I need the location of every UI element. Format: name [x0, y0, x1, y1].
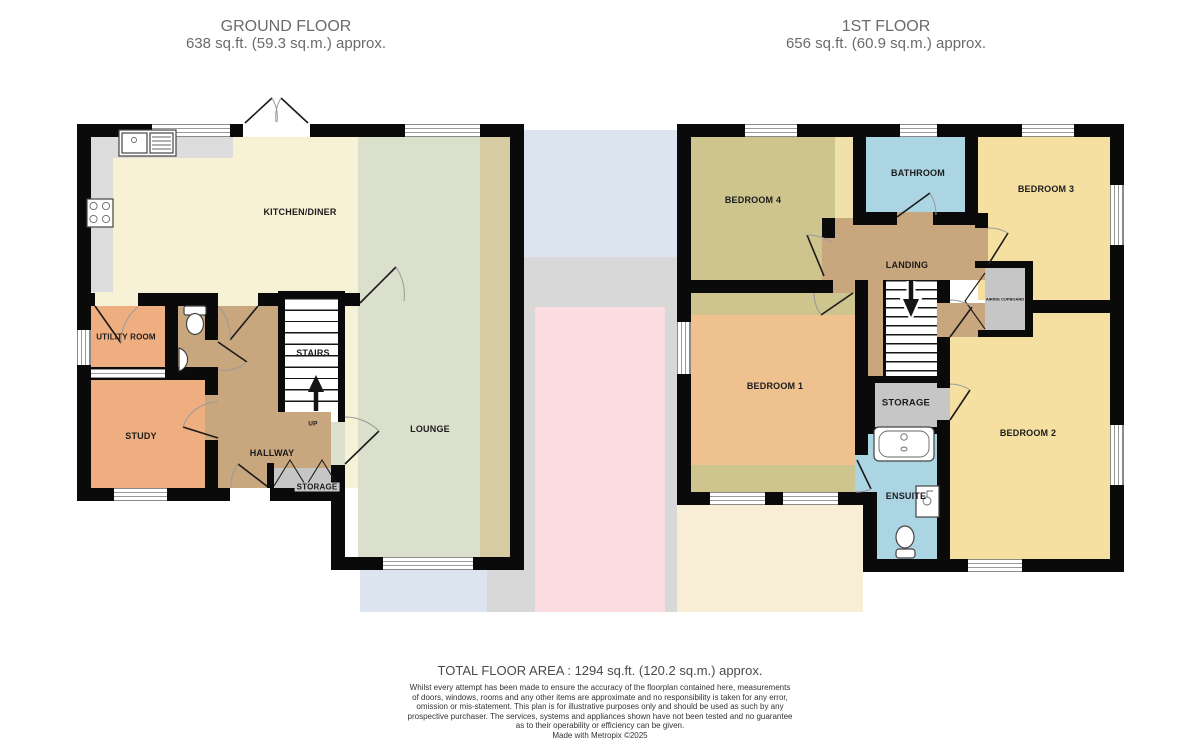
up-label: UP [308, 421, 317, 428]
wc-floor [178, 306, 205, 367]
wall [853, 212, 897, 225]
wall [205, 306, 218, 340]
window [745, 124, 797, 137]
wall [138, 293, 218, 306]
airing-cupboard-label: AIRING CUPBOARD [986, 297, 1024, 302]
first-floor-title: 1ST FLOOR [736, 18, 1036, 36]
kitchen-counter [91, 137, 233, 158]
bedroom3-label: BEDROOM 3 [1018, 184, 1074, 194]
wall [937, 280, 950, 303]
wall [473, 557, 524, 570]
footer: TOTAL FLOOR AREA : 1294 sq.ft. (120.2 sq… [0, 663, 1200, 741]
wash-cream [677, 505, 863, 612]
wall [822, 218, 835, 238]
wall [331, 557, 383, 570]
window [114, 488, 167, 501]
disclaimer-line: Whilst every attempt has been made to en… [0, 683, 1200, 693]
window [1110, 185, 1124, 245]
credit-line: Made with Metropix ©2025 [0, 731, 1200, 741]
wash-gray [487, 570, 535, 612]
bedroom4-label: BEDROOM 4 [725, 195, 781, 205]
wall [883, 280, 886, 380]
wall [278, 291, 345, 298]
wall [267, 463, 274, 488]
wash-blue [360, 570, 487, 612]
first-floor-area: 656 sq.ft. (60.9 sq.m.) approx. [736, 36, 1036, 52]
wall [1022, 559, 1124, 572]
wall [230, 124, 243, 137]
window [152, 124, 230, 137]
disclaimer-line: prospective purchaser. The services, sys… [0, 712, 1200, 722]
window [900, 124, 937, 137]
wall [77, 488, 114, 501]
kitchen-diner-label: KITCHEN/DINER [263, 207, 336, 217]
doorway [218, 293, 258, 306]
doorway [855, 455, 868, 492]
wash-gray [524, 307, 535, 612]
doorway [937, 388, 950, 420]
wall [1025, 261, 1033, 337]
landing-label: LANDING [886, 260, 928, 270]
wall [1110, 245, 1124, 425]
ground-floor-header: GROUND FLOOR 638 sq.ft. (59.3 sq.m.) app… [136, 18, 436, 52]
kitchen-diner-floor [91, 137, 358, 306]
doorway [95, 293, 138, 306]
bathroom-label: BATHROOM [891, 168, 945, 178]
doorway [205, 340, 218, 367]
floorplan-canvas: GROUND FLOOR 638 sq.ft. (59.3 sq.m.) app… [0, 0, 1200, 744]
doorway [331, 422, 345, 465]
wall [677, 374, 691, 505]
wash-gray [524, 257, 677, 307]
window [968, 559, 1022, 572]
stairs-down [885, 280, 937, 380]
wall [345, 293, 360, 306]
disclaimer-line: as to their operability or efficiency ca… [0, 721, 1200, 731]
wall [167, 488, 230, 501]
wall [677, 492, 710, 505]
internal-window [91, 369, 165, 378]
doorway [822, 238, 835, 280]
total-floor-area: TOTAL FLOOR AREA : 1294 sq.ft. (120.2 sq… [0, 663, 1200, 678]
bedroom1-label: BEDROOM 1 [747, 381, 803, 391]
study-label: STUDY [125, 431, 157, 441]
wall [765, 492, 783, 505]
storage-first-label: STORAGE [882, 398, 930, 409]
wall [975, 213, 988, 228]
window [1022, 124, 1074, 137]
bedroom4-floor [835, 137, 853, 218]
wash-gray [665, 307, 677, 570]
bedroom1-floor [691, 293, 855, 315]
wall [510, 124, 524, 570]
wall [797, 124, 900, 137]
disclaimer-line: omission or mis-statement. This plan is … [0, 702, 1200, 712]
entrance-double-door-icon [245, 98, 308, 123]
wall [278, 291, 285, 412]
wall [863, 559, 968, 572]
hallway-label: HALLWAY [250, 448, 295, 458]
wall [77, 365, 91, 501]
wall [205, 367, 218, 395]
lounge-floor [358, 137, 480, 557]
doorway [205, 395, 218, 440]
doorway [833, 280, 855, 293]
wall [868, 376, 950, 383]
entrance-opening [243, 124, 310, 137]
window [383, 557, 473, 570]
window [405, 124, 480, 137]
kitchen-counter [91, 137, 113, 292]
window [710, 492, 765, 505]
wall [933, 212, 978, 225]
wall [310, 124, 405, 137]
disclaimer-line: of doors, windows, rooms and any other i… [0, 693, 1200, 703]
ground-floor-area: 638 sq.ft. (59.3 sq.m.) approx. [136, 36, 436, 52]
wall [868, 376, 875, 434]
wash-blue [524, 130, 677, 260]
wall [77, 293, 95, 306]
wall [937, 420, 950, 559]
wash-pink [535, 307, 665, 612]
wall [1110, 124, 1124, 185]
lounge-floor [480, 137, 513, 557]
wall [855, 280, 868, 455]
first-floor-header: 1ST FLOOR 656 sq.ft. (60.9 sq.m.) approx… [736, 18, 1036, 52]
wall [165, 293, 178, 367]
window [783, 492, 838, 505]
kitchen-diner-floor [345, 306, 358, 488]
wall [937, 124, 1022, 137]
bedroom2-label: BEDROOM 2 [1000, 428, 1056, 438]
doorway [897, 212, 933, 228]
window [1110, 425, 1124, 485]
wall [205, 440, 218, 488]
wall [677, 280, 833, 293]
window [77, 330, 91, 365]
ground-floor-title: GROUND FLOOR [136, 18, 436, 36]
wall [1025, 300, 1110, 313]
window [677, 322, 691, 374]
bedroom1-floor [691, 465, 855, 492]
storage-label: STORAGE [295, 483, 340, 492]
front-door-opening [230, 488, 270, 501]
stairs-label: STAIRS [296, 348, 330, 358]
wall [868, 427, 950, 434]
lounge-label: LOUNGE [410, 424, 450, 434]
wall [338, 291, 345, 422]
ensuite-label: ENSUITE [886, 491, 926, 501]
utility-room-label: UTILITY ROOM [96, 333, 156, 342]
